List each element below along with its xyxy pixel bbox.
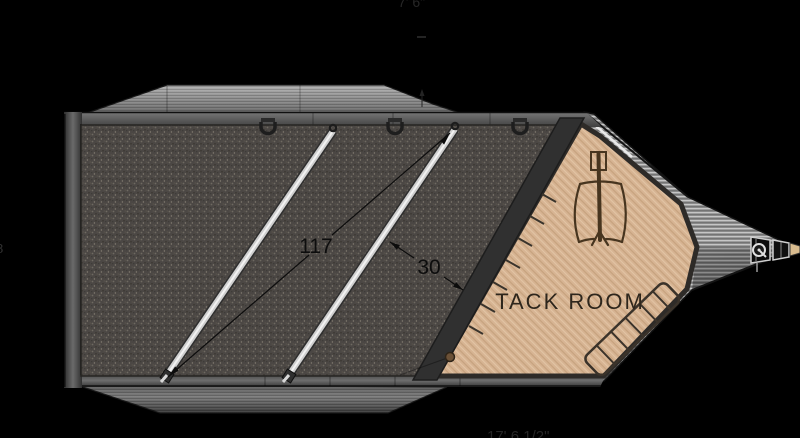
cropped-top-dim: 7' 6" xyxy=(398,0,425,10)
horse-trailer-floorplan: 117 30 TACK ROOM 7' 6" 17' 6 1/2" 8 xyxy=(0,0,800,438)
left-wall xyxy=(64,112,82,388)
dim-117-label: 117 xyxy=(299,235,332,258)
tack-room-label: TACK ROOM xyxy=(495,289,645,314)
cropped-left-dim: 8 xyxy=(0,241,3,256)
cropped-bottom-dim: 17' 6 1/2" xyxy=(487,428,549,438)
dim-30-label: 30 xyxy=(417,256,440,279)
